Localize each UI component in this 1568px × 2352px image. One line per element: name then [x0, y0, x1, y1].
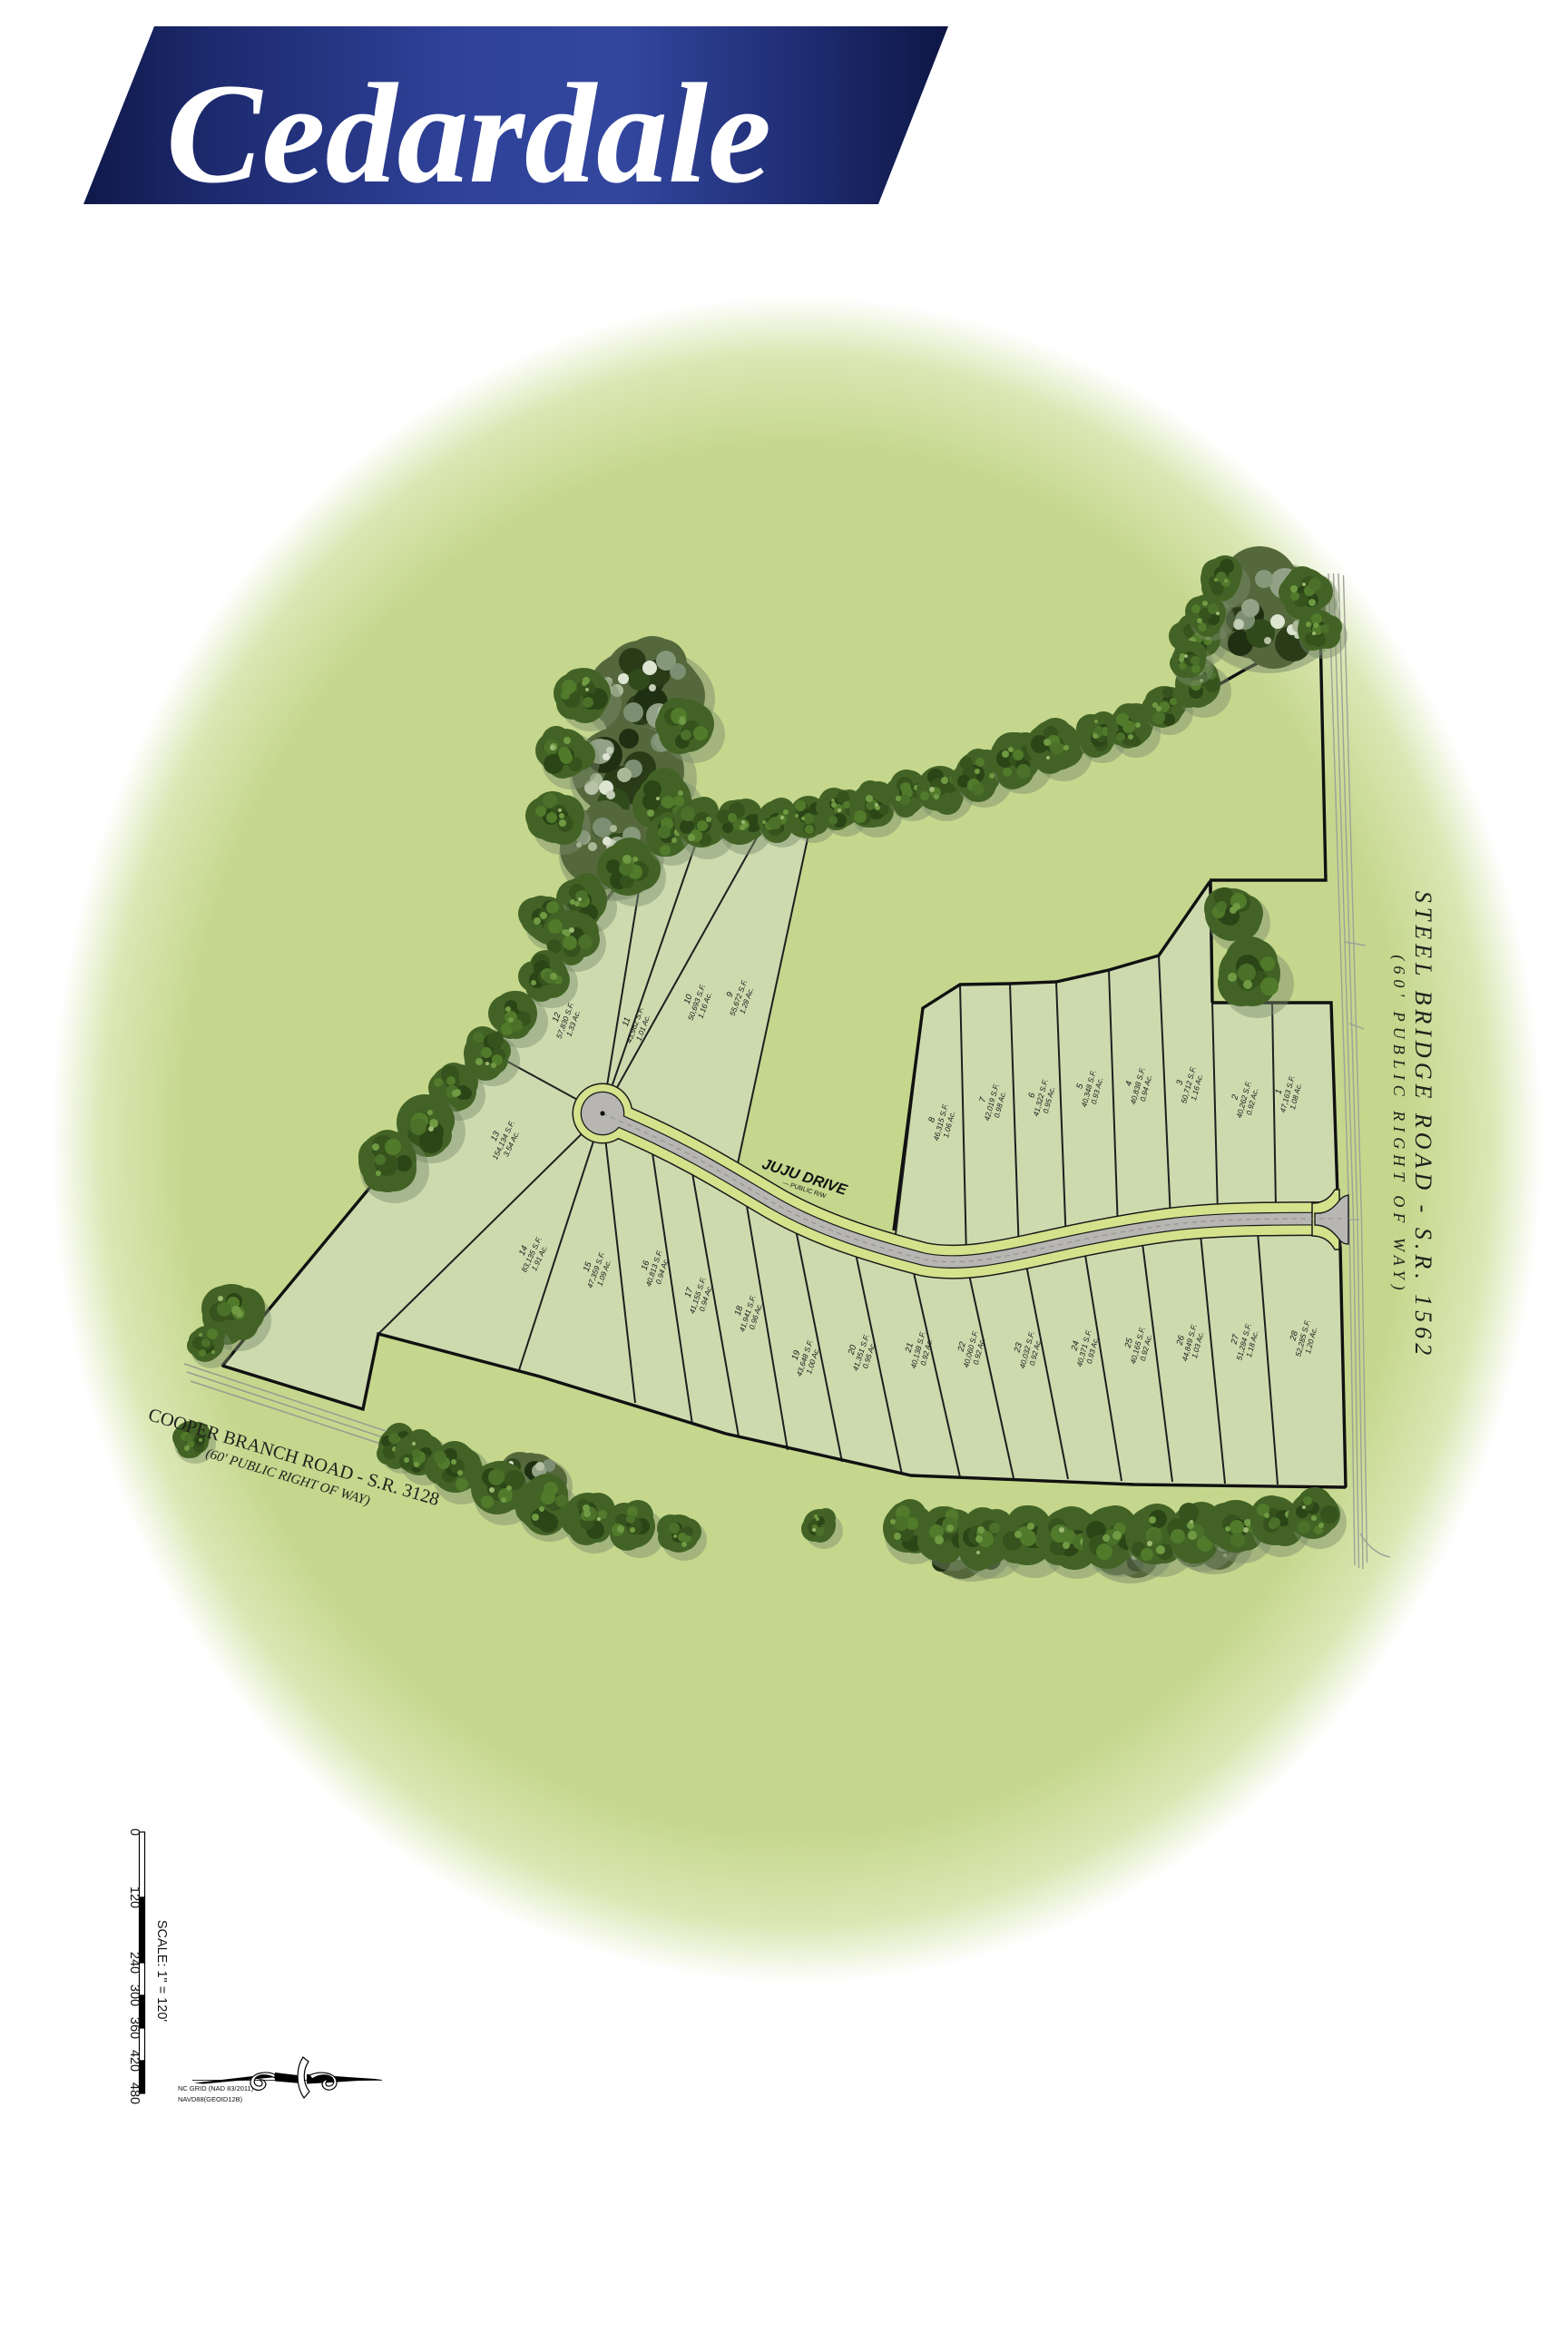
svg-text:420: 420	[127, 2050, 142, 2072]
svg-text:NAVD88(GEOID12B): NAVD88(GEOID12B)	[178, 2095, 243, 2103]
svg-text:240: 240	[127, 1952, 142, 1974]
svg-text:300: 300	[127, 1984, 142, 2006]
svg-text:(60' PUBLIC RIGHT OF WAY): (60' PUBLIC RIGHT OF WAY)	[1389, 955, 1408, 1295]
svg-text:480: 480	[127, 2082, 142, 2104]
svg-text:120: 120	[127, 1886, 142, 1908]
svg-text:STEEL BRIDGE ROAD - S.R. 1562: STEEL BRIDGE ROAD - S.R. 1562	[1410, 891, 1436, 1359]
svg-text:SCALE: 1" = 120': SCALE: 1" = 120'	[154, 1920, 169, 2023]
svg-text:360: 360	[127, 2017, 142, 2039]
svg-text:0: 0	[127, 1828, 142, 1836]
svg-text:Cedardale: Cedardale	[166, 54, 771, 213]
svg-text:NC GRID (NAD 83/2011): NC GRID (NAD 83/2011)	[178, 2084, 254, 2092]
